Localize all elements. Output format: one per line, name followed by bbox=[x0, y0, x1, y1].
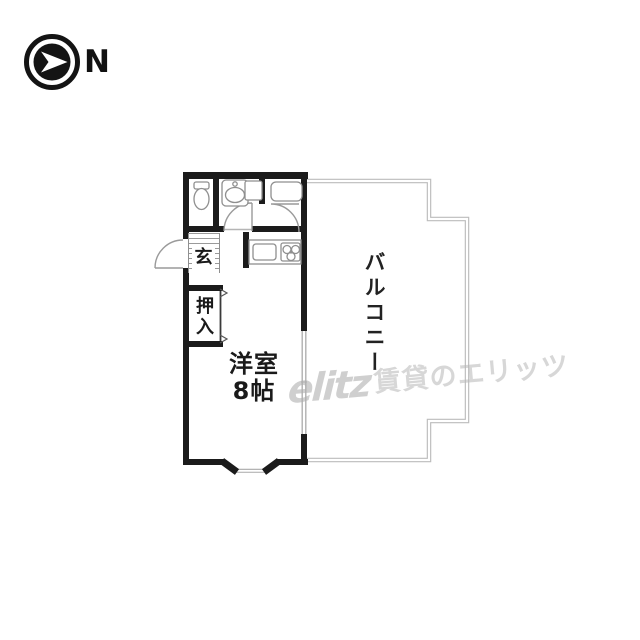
washer-pan-icon bbox=[245, 181, 262, 200]
toilet-icon bbox=[194, 182, 209, 210]
closet-sliding-door bbox=[220, 289, 227, 343]
floorplan-page: N 玄 押入 洋室 8帖 バルコニー elitz賃貸のエリッツ bbox=[0, 0, 640, 640]
washroom-door-arc bbox=[224, 203, 252, 231]
stove-icon bbox=[281, 243, 300, 261]
room-label: 洋室 8帖 bbox=[219, 351, 289, 405]
floorplan-drawing bbox=[0, 0, 640, 640]
kitchen-sink-icon bbox=[253, 244, 276, 260]
wall-hall-top-left bbox=[189, 226, 224, 232]
wall-kitchen-stub bbox=[243, 232, 249, 268]
room-size: 8帖 bbox=[219, 378, 289, 405]
wall-right-lower bbox=[301, 434, 307, 465]
wall-top bbox=[183, 172, 308, 179]
wall-closet-bottom bbox=[183, 341, 223, 347]
north-label: N bbox=[84, 44, 110, 80]
wall-closet-top bbox=[183, 285, 223, 291]
balcony-label: バルコニー bbox=[359, 251, 389, 376]
wall-left-upper bbox=[183, 172, 189, 239]
watermark-logo: elitz bbox=[287, 361, 371, 413]
closet-label: 押入 bbox=[190, 296, 216, 338]
entrance-door-arc bbox=[155, 240, 183, 268]
north-compass-icon bbox=[27, 37, 78, 88]
washbasin-icon bbox=[222, 180, 248, 206]
wall-left-lower bbox=[183, 268, 189, 465]
wall-toilet-right bbox=[213, 172, 219, 232]
room-name: 洋室 bbox=[219, 351, 289, 378]
genkan-label: 玄 bbox=[192, 247, 215, 269]
bay-window bbox=[222, 461, 279, 472]
bathtub-icon bbox=[271, 182, 302, 201]
kitchen-counter bbox=[249, 240, 301, 264]
wall-bottom-left bbox=[183, 459, 225, 465]
